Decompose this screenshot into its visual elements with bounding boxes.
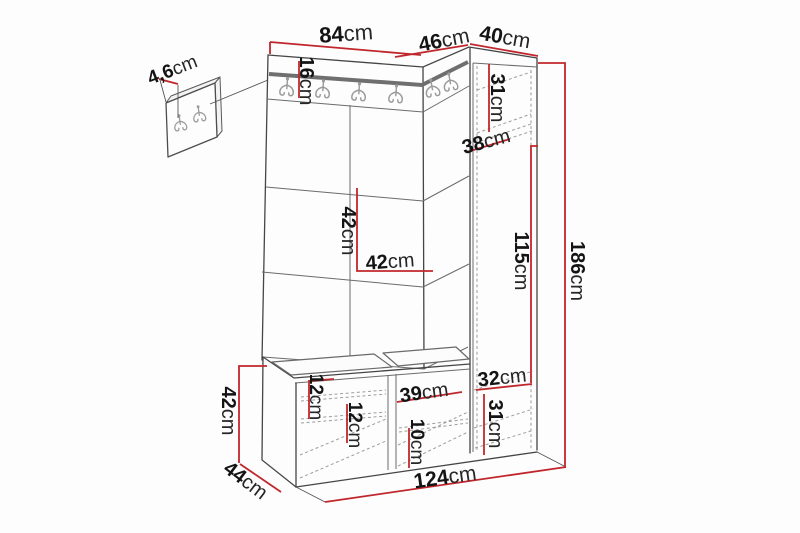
dim-label-bench-depth: 44cm xyxy=(219,457,271,504)
coat-hook-icon xyxy=(352,82,367,101)
dim-label-hook-rail-height: 16cm xyxy=(295,57,317,106)
bench-cushion xyxy=(383,347,469,366)
dim-label-bench-gap-right: 10cm xyxy=(406,419,427,465)
coat-hook-icon xyxy=(424,77,440,97)
dim-label-bench-gap-upper: 12cm xyxy=(305,374,326,420)
dim-label-total-height: 186cm xyxy=(566,241,588,301)
coat-hook-icon xyxy=(280,77,295,96)
dim-label-bench-compartment-width: 39cm xyxy=(398,379,450,408)
mini-hook-panel xyxy=(160,77,268,157)
coat-hook-icon xyxy=(389,84,404,103)
dim-label-panel-tile-height: 42cm xyxy=(337,207,359,256)
dim-label-total-width: 124cm xyxy=(412,462,478,494)
dim-label-mini-panel-thickness: 4,6cm xyxy=(145,51,201,89)
dim-label-cabinet-depth: 38cm xyxy=(460,125,513,159)
dim-label-bench-height: 42cm xyxy=(217,387,239,436)
dim-line-total-height xyxy=(538,63,565,467)
dim-label-cabinet-top-height: 31cm xyxy=(486,74,508,123)
diagram-canvas: 4,6cm 84cm 46cm 40cm 16cm 31cm 38cm 42cm… xyxy=(0,0,800,533)
dim-label-cabinet-mid-height: 115cm xyxy=(510,232,532,291)
dim-label-panel-tile-width: 42cm xyxy=(365,249,415,274)
dim-label-cabinet-lower-width: 32cm xyxy=(477,364,528,391)
dim-label-bench-gap-lower: 12cm xyxy=(344,402,365,448)
dim-label-cabinet-lower-height: 31cm xyxy=(484,400,506,449)
dim-label-top-width-main: 84cm xyxy=(318,19,373,48)
dim-label-top-width-corner: 46cm xyxy=(417,24,472,56)
dim-label-top-width-cabinet: 40cm xyxy=(478,22,533,54)
furniture-dimension-diagram: 4,6cm 84cm 46cm 40cm 16cm 31cm 38cm 42cm… xyxy=(0,0,800,533)
